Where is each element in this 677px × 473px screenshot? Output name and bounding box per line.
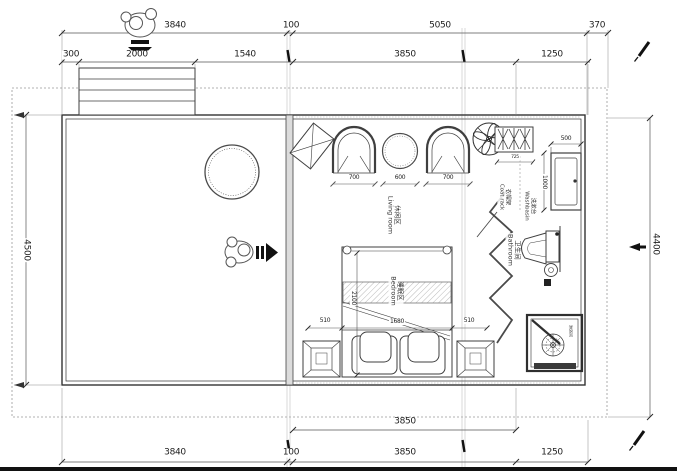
armchair-right [427, 127, 469, 173]
dim-washbasin-500: 500 [560, 136, 573, 142]
dim-bottom-3850: 3850 [393, 449, 417, 458]
pen-icon-bottom-right [630, 431, 645, 451]
armchair-left [333, 127, 375, 173]
nightstand-left [303, 341, 340, 377]
washbasin-label: 洗漱台 Washbasin [523, 190, 536, 222]
shower-label-zh: 淋浴间 [568, 325, 573, 337]
bathroom-label: 卫生间 Bathroom [506, 233, 521, 267]
dim-top-100: 100 [282, 22, 300, 31]
dim-top2-1540: 1540 [233, 51, 257, 60]
dim-right-4400: 4400 [651, 232, 660, 256]
dim-top2-300: 300 [62, 51, 80, 60]
bathroom-label-zh: 卫生间 [513, 240, 520, 260]
dim-bed-510-left: 510 [319, 318, 332, 324]
bedroom-label-en: Bedroom [389, 276, 396, 305]
shower [527, 315, 582, 371]
dim-arrow-marker [629, 243, 646, 251]
dim-bottom-3850-inner: 3850 [393, 418, 417, 427]
dim-bed-1680: 1680 [389, 319, 405, 325]
dim-chair-right-700: 700 [442, 175, 455, 181]
living-dim-lines [331, 182, 473, 187]
page-bottom-border [0, 467, 677, 471]
dim-top2-2000: 2000 [125, 51, 149, 60]
nightstand-right [457, 341, 494, 377]
dim-table-600: 600 [394, 175, 407, 181]
dim-top2-3850: 3850 [393, 51, 417, 60]
dim-left-4500: 4500 [22, 238, 31, 262]
round-table [383, 134, 418, 169]
pillow-right [408, 332, 439, 362]
dim-chair-left-700: 700 [348, 175, 361, 181]
entry-arrow-right-icon [256, 243, 278, 262]
coat-rack-label-en: Coat rack [498, 184, 504, 210]
entry-person-side-icon [225, 237, 253, 267]
bathroom-door-leaf [477, 212, 497, 237]
dim-bed-510-right: 510 [463, 318, 476, 324]
bedroom-label-zh: 睡眠区 [396, 281, 403, 301]
dim-top-370: 370 [588, 22, 606, 31]
floor-plan-drawing [0, 0, 677, 473]
dim-bottom-100: 100 [282, 449, 300, 458]
living-room-label: 休闲区 Living room [386, 195, 401, 235]
living-room-label-zh: 休闲区 [393, 205, 400, 225]
dim-top-3840: 3840 [163, 22, 187, 31]
shower-label: 淋浴间 [568, 324, 573, 338]
hot-tub [205, 145, 259, 199]
coat-rack-label: 衣帽架 Coat rack [498, 183, 511, 211]
dim-bottom-3840: 3840 [163, 449, 187, 458]
dim-top-5050: 5050 [428, 22, 452, 31]
bedroom-label: 睡眠区 Bedroom [389, 275, 404, 306]
toilet [522, 226, 561, 286]
dim-coatrack-725: 725 [510, 156, 520, 161]
dim-washbasin-1000: 1000 [541, 174, 547, 190]
washbasin-label-zh: 洗漱台 [529, 198, 535, 215]
dim-bed-2100: 2100 [350, 290, 356, 306]
washbasin-label-en: Washbasin [523, 191, 529, 221]
bed [342, 246, 452, 377]
pen-icon-top-right [635, 42, 650, 62]
dim-bottom-1250: 1250 [540, 449, 564, 458]
side-table [290, 123, 334, 169]
coat-rack-label-zh: 衣帽架 [504, 189, 510, 206]
bathroom-label-en: Bathroom [506, 234, 513, 266]
interior-wall [286, 115, 293, 385]
dim-top2-1250: 1250 [540, 51, 564, 60]
living-room-label-en: Living room [386, 196, 393, 234]
floor-plan-canvas: 3840 100 5050 370 300 2000 1540 3850 125… [0, 0, 677, 473]
stairs [79, 68, 195, 115]
pillow-left [360, 332, 391, 362]
